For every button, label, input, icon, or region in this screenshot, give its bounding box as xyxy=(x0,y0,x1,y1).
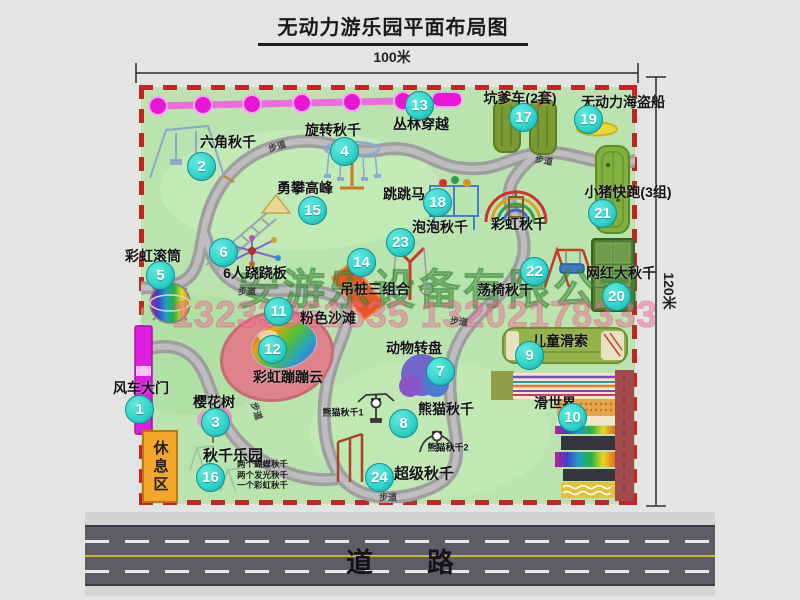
dimension-width-label: 100米 xyxy=(373,47,410,67)
page-title: 无动力游乐园平面布局图 xyxy=(258,11,528,46)
map-border-right xyxy=(632,85,637,505)
road-label: 道 路 xyxy=(85,541,715,580)
map-border-bottom xyxy=(139,500,637,505)
road-shoulder-bottom xyxy=(85,586,715,596)
rest-area-label: 休息区 xyxy=(150,440,171,494)
road: 道 路 xyxy=(85,525,715,586)
park-ground xyxy=(141,87,635,504)
rest-area-box: 休息区 xyxy=(142,430,178,503)
dimension-height-label: 120米 xyxy=(659,272,679,309)
park-layout-plan: 无动力游乐园平面布局图 100米 120米 xyxy=(0,0,800,600)
road-shoulder-top xyxy=(85,512,715,525)
map-border-top xyxy=(139,85,637,90)
